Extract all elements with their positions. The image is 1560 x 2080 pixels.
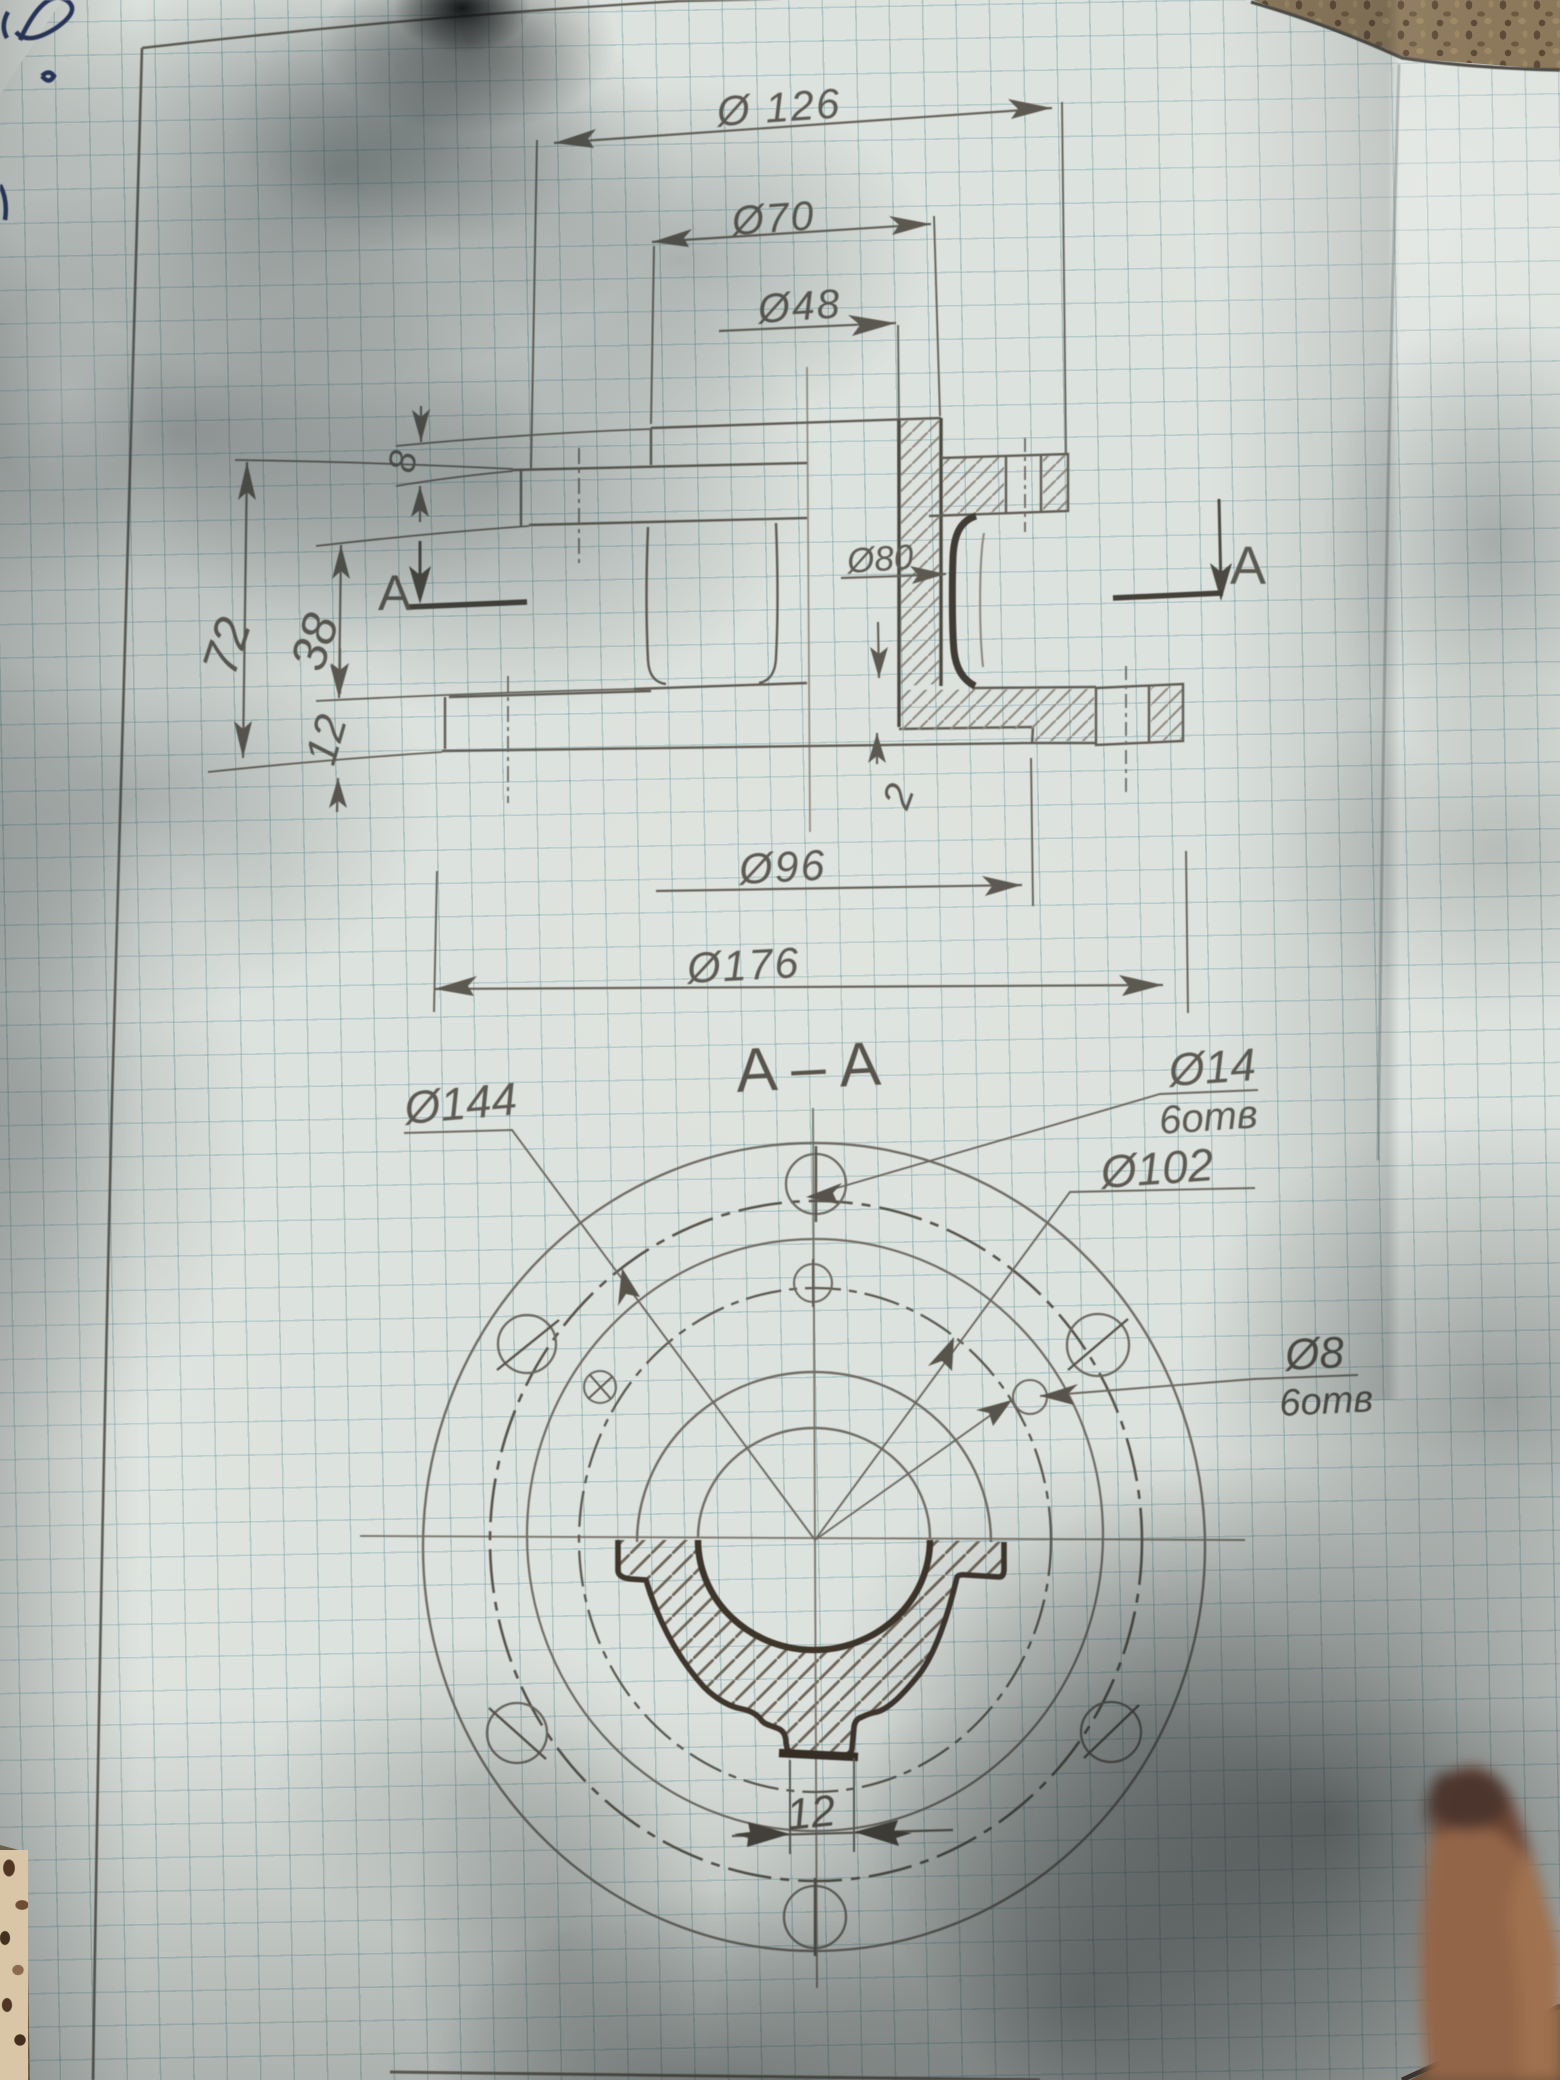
svg-text:12: 12: [296, 709, 357, 770]
svg-text:A – A: A – A: [734, 1029, 883, 1106]
svg-text:Ø176: Ø176: [684, 939, 802, 993]
svg-text:Ø70: Ø70: [728, 192, 817, 244]
svg-text:Ø48: Ø48: [754, 280, 843, 332]
svg-text:Ø96: Ø96: [736, 841, 828, 894]
svg-text:6отв: 6отв: [1278, 1378, 1374, 1425]
svg-text:Ø144: Ø144: [400, 1072, 519, 1134]
svg-text:72: 72: [191, 611, 262, 681]
svg-text:Ø8: Ø8: [1282, 1328, 1346, 1380]
svg-text:A: A: [1230, 536, 1266, 596]
svg-text:A: A: [378, 565, 412, 621]
svg-text:Ø 126: Ø 126: [713, 79, 842, 135]
svg-text:Ø14: Ø14: [1165, 1038, 1257, 1096]
svg-text:6отв: 6отв: [1158, 1092, 1260, 1143]
svg-text:Ø80: Ø80: [845, 537, 915, 581]
svg-text:12: 12: [784, 1786, 838, 1840]
svg-text:2: 2: [874, 778, 923, 815]
svg-text:8: 8: [381, 448, 426, 476]
